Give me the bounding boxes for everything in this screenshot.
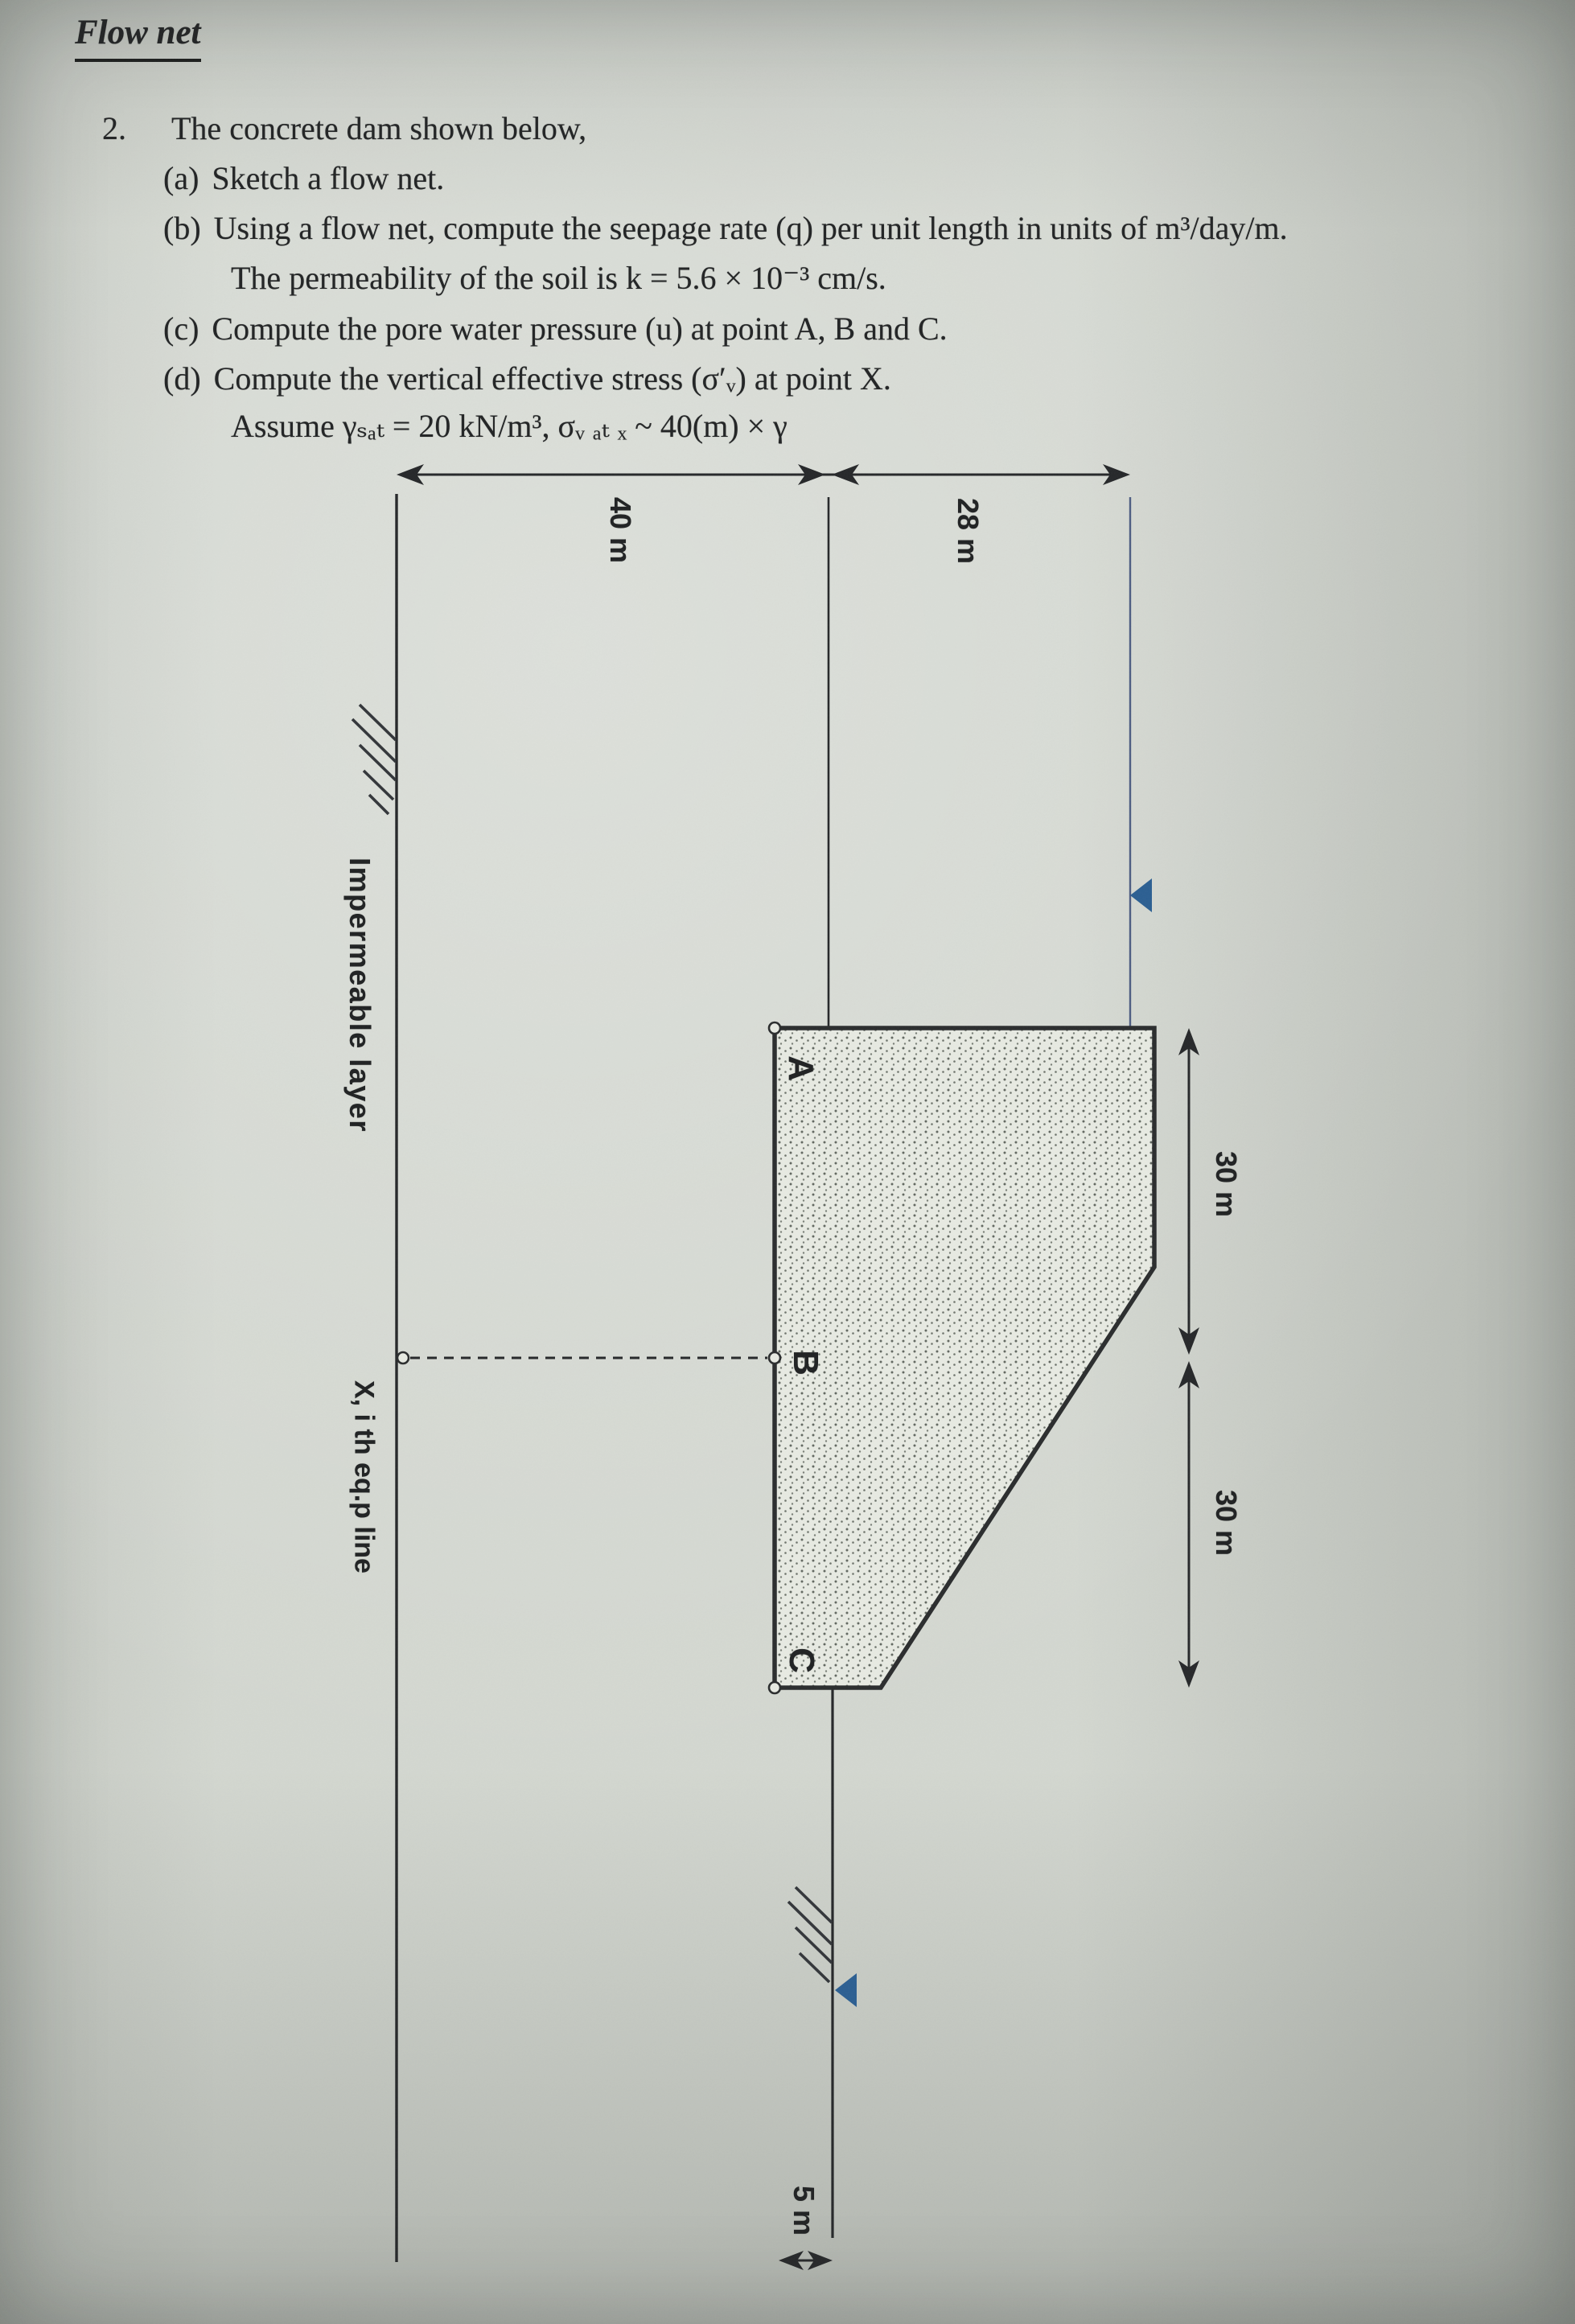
dam-corner-marker-top [769, 1022, 780, 1034]
dam-cross-section-figure [0, 0, 1575, 2324]
point-label-b: B [785, 1350, 825, 1376]
upstream-water-level-icon [1130, 878, 1152, 912]
photographed-worksheet-page: Flow net 2. The concrete dam shown below… [0, 0, 1575, 2324]
top-dimension-line [397, 464, 1130, 485]
ground-hatch-icon-2 [788, 1887, 832, 1982]
ground-hatch-icon [352, 705, 396, 814]
dim-label-5m: 5 m [787, 2186, 820, 2236]
right-dimension-line [1178, 1028, 1199, 1688]
downstream-water-level-icon [835, 1973, 857, 2007]
bottom-dimension-line [779, 2251, 833, 2270]
point-b-marker [769, 1352, 780, 1364]
equipotential-line-label: X, i th eq.p line [348, 1380, 380, 1573]
dam-corner-marker-bottom [769, 1682, 780, 1693]
impermeable-layer-label: Impermeable layer [343, 858, 376, 1133]
dim-label-30m-lower: 30 m [1209, 1490, 1243, 1556]
point-x-marker [397, 1352, 409, 1364]
dim-label-28m: 28 m [951, 498, 985, 564]
point-label-c: C [781, 1647, 821, 1673]
point-label-a: A [780, 1055, 820, 1081]
dim-label-40m: 40 m [603, 497, 637, 563]
dim-label-30m-upper: 30 m [1209, 1151, 1243, 1217]
dam-body [775, 1028, 1154, 1688]
